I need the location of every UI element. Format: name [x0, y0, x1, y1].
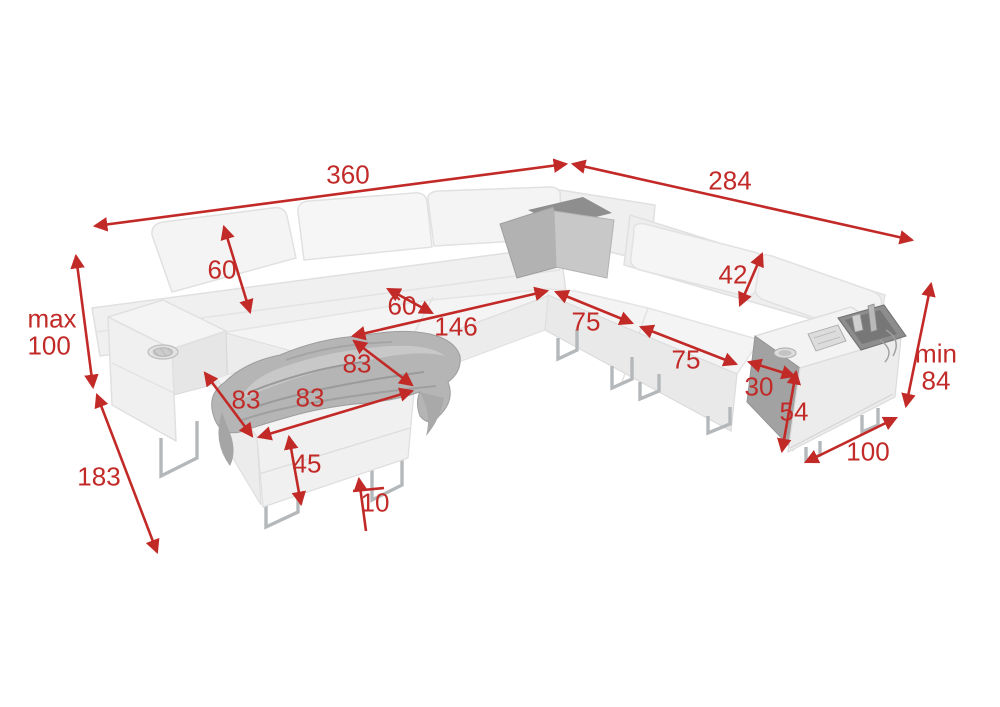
dim-total-width-left: 360 [326, 161, 369, 188]
dim-seat-width-b: 75 [672, 346, 701, 373]
dim-max-value: 100 [27, 333, 70, 360]
dim-seat-depth: 60 [388, 292, 417, 319]
dim-bed-length: 146 [434, 313, 477, 340]
dim-ottoman-side: 83 [232, 386, 261, 413]
dim-max-height: max 100 [27, 306, 76, 361]
dim-min-height: min 84 [915, 341, 957, 396]
pillow-right [554, 211, 614, 278]
dim-seat-width-a: 75 [572, 308, 601, 335]
dim-ottoman-width: 83 [296, 384, 325, 411]
dim-ottoman-height: 45 [293, 450, 322, 477]
dim-backrest-height: 60 [208, 256, 237, 283]
dim-depth-right: 100 [846, 438, 889, 465]
headrest-panel-2 [298, 193, 432, 260]
dim-headrest-height: 42 [719, 261, 748, 288]
dim-armrest-top-width: 30 [745, 373, 774, 400]
dim-ottoman-diagonal: 83 [343, 350, 372, 377]
dim-armrest-front-height: 54 [780, 398, 809, 425]
sofa-illustration [0, 0, 1000, 707]
dim-leg-height: 10 [361, 489, 390, 516]
dim-max-prefix: max [27, 306, 76, 333]
dim-min-value: 84 [922, 368, 951, 395]
dim-min-prefix: min [915, 341, 957, 368]
dim-depth-left: 183 [77, 463, 120, 490]
dimension-diagram: 360 284 60 60 146 75 75 42 30 54 min 84 … [0, 0, 1000, 707]
arrow-max-height [76, 256, 93, 387]
dim-total-width-right: 284 [708, 167, 751, 194]
